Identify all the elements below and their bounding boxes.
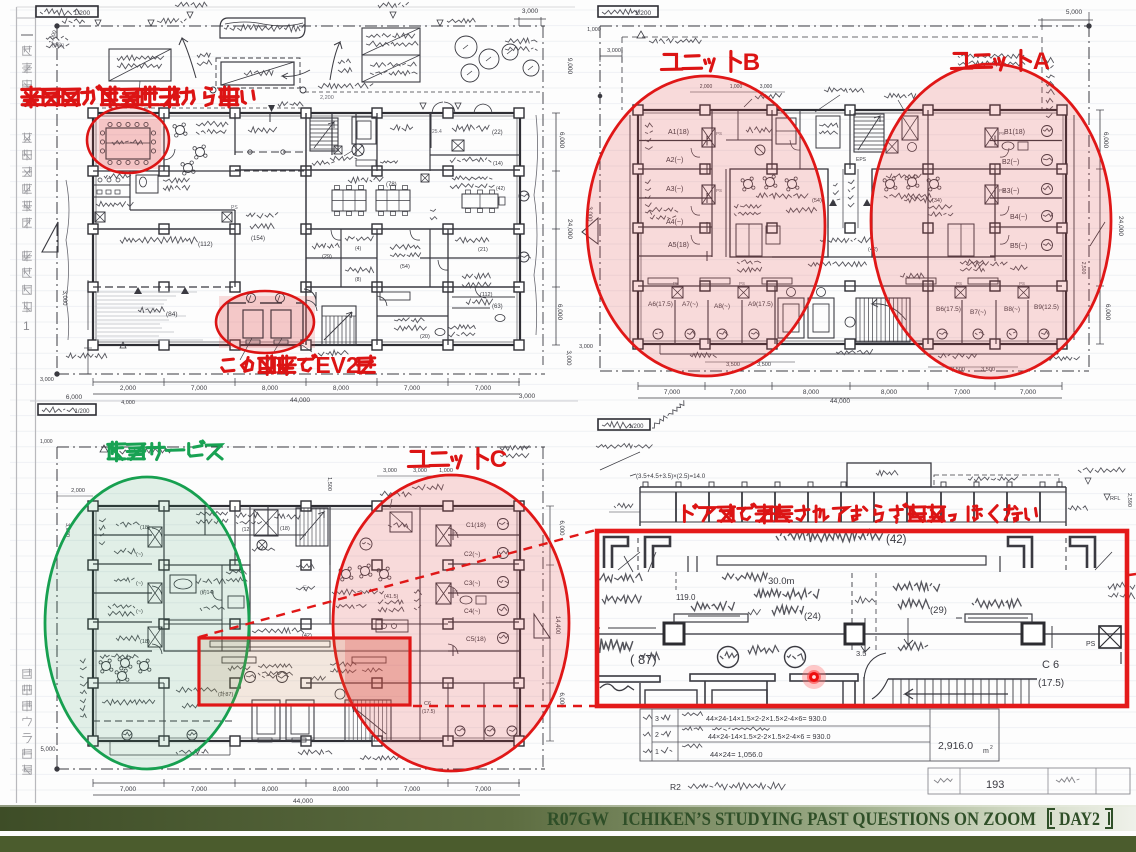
svg-text:44×24-14×1.5×2-2×1.5×2-4×6= 93: 44×24-14×1.5×2-2×1.5×2-4×6= 930.0 bbox=[706, 714, 827, 723]
svg-text:(3.5+4.5+3.5)×(2.5)=14.0: (3.5+4.5+3.5)×(2.5)=14.0 bbox=[636, 473, 706, 480]
svg-text:8,000: 8,000 bbox=[333, 786, 350, 793]
svg-text:8,000: 8,000 bbox=[262, 786, 279, 793]
svg-text:1,000: 1,000 bbox=[40, 439, 53, 445]
svg-text:44×24= 1,056.0: 44×24= 1,056.0 bbox=[710, 750, 763, 759]
svg-text:(78): (78) bbox=[386, 182, 397, 188]
svg-text:1/200: 1/200 bbox=[635, 10, 652, 17]
svg-text:(29): (29) bbox=[930, 605, 947, 616]
svg-text:44×24-14×1.5×2-2×1.5×2-4×6 = 9: 44×24-14×1.5×2-2×1.5×2-4×6 = 930.0 bbox=[708, 732, 831, 741]
svg-text:(14): (14) bbox=[493, 161, 503, 167]
svg-text:3,000: 3,000 bbox=[519, 393, 536, 400]
svg-text:1,500: 1,500 bbox=[326, 477, 332, 491]
svg-text:R2: R2 bbox=[670, 782, 681, 792]
svg-text:3,500: 3,500 bbox=[757, 362, 771, 368]
svg-text:44,000: 44,000 bbox=[293, 798, 313, 805]
svg-text:1/200: 1/200 bbox=[628, 424, 644, 430]
svg-text:(84): (84) bbox=[166, 311, 178, 318]
svg-text:3,000: 3,000 bbox=[760, 84, 773, 90]
svg-text:PS: PS bbox=[231, 205, 238, 211]
svg-text:2: 2 bbox=[655, 732, 659, 739]
svg-text:(21): (21) bbox=[478, 247, 488, 253]
svg-text:3.5: 3.5 bbox=[856, 649, 866, 658]
svg-text:1: 1 bbox=[655, 749, 659, 756]
svg-text:ICHIKEN’S STUDYING PAST QUESTI: ICHIKEN’S STUDYING PAST QUESTIONS ON ZOO… bbox=[622, 809, 1036, 830]
svg-text:30.0m: 30.0m bbox=[768, 576, 794, 587]
svg-text:7,000: 7,000 bbox=[120, 786, 137, 793]
svg-text:3,000: 3,000 bbox=[61, 290, 67, 306]
svg-text:5,000: 5,000 bbox=[40, 747, 56, 753]
svg-text:24,000: 24,000 bbox=[1117, 216, 1124, 236]
svg-text:(42): (42) bbox=[496, 186, 505, 192]
svg-text:25.4: 25.4 bbox=[432, 129, 442, 135]
svg-text:3,000: 3,000 bbox=[565, 350, 571, 366]
svg-text:6,000: 6,000 bbox=[558, 132, 565, 149]
svg-text:(17.5): (17.5) bbox=[1038, 678, 1064, 689]
svg-text:24,000: 24,000 bbox=[566, 219, 573, 239]
svg-text:2: 2 bbox=[990, 745, 993, 751]
svg-text:8,000: 8,000 bbox=[803, 389, 820, 396]
svg-text:C 6: C 6 bbox=[1042, 659, 1059, 671]
svg-text:1,000: 1,000 bbox=[587, 27, 601, 33]
svg-text:(54): (54) bbox=[400, 264, 410, 270]
svg-text:3,000: 3,000 bbox=[413, 468, 427, 474]
svg-text:8,000: 8,000 bbox=[881, 389, 898, 396]
svg-text:1: 1 bbox=[23, 319, 30, 333]
svg-text:(154): (154) bbox=[251, 236, 265, 242]
svg-text:3: 3 bbox=[655, 716, 659, 723]
svg-text:(18): (18) bbox=[280, 526, 290, 532]
svg-text:(42): (42) bbox=[886, 534, 907, 546]
svg-text:7,000: 7,000 bbox=[1020, 389, 1037, 396]
svg-text:3,000: 3,000 bbox=[579, 344, 593, 350]
svg-text:4,000: 4,000 bbox=[121, 400, 135, 406]
svg-text:(22): (22) bbox=[492, 130, 503, 136]
svg-text:2,200: 2,200 bbox=[320, 95, 334, 101]
svg-text:6,000: 6,000 bbox=[1104, 304, 1111, 321]
svg-text:193: 193 bbox=[986, 779, 1004, 791]
svg-text:6,000: 6,000 bbox=[556, 304, 563, 321]
svg-text:(63): (63) bbox=[492, 304, 503, 310]
svg-text:3,000: 3,000 bbox=[607, 48, 621, 54]
svg-text:7,000: 7,000 bbox=[404, 786, 421, 793]
svg-text:RFL: RFL bbox=[1110, 496, 1120, 502]
svg-text:C: C bbox=[490, 446, 507, 473]
svg-text:2,590: 2,590 bbox=[1126, 493, 1132, 507]
svg-text:DAY2: DAY2 bbox=[1059, 809, 1100, 830]
svg-text:3,000: 3,000 bbox=[40, 377, 54, 383]
svg-text:(112): (112) bbox=[198, 241, 213, 248]
svg-text:5,000: 5,000 bbox=[1066, 9, 1083, 16]
svg-text:7,000: 7,000 bbox=[954, 389, 971, 396]
svg-text:A: A bbox=[1033, 48, 1050, 75]
svg-text:R07GW: R07GW bbox=[547, 809, 609, 830]
svg-text:7,000: 7,000 bbox=[475, 385, 492, 392]
svg-text:B: B bbox=[743, 49, 760, 76]
svg-text:1/200: 1/200 bbox=[74, 10, 91, 17]
svg-text:(8): (8) bbox=[355, 277, 361, 283]
svg-text:( 87): ( 87) bbox=[630, 652, 657, 667]
svg-text:6,000: 6,000 bbox=[66, 394, 83, 401]
svg-text:PS: PS bbox=[1086, 641, 1096, 648]
svg-text:EPS: EPS bbox=[856, 157, 867, 163]
svg-text:7,000: 7,000 bbox=[664, 389, 681, 396]
svg-text:44,000: 44,000 bbox=[830, 398, 850, 405]
svg-text:44,000: 44,000 bbox=[290, 397, 310, 404]
svg-text:(4): (4) bbox=[355, 246, 361, 252]
svg-text:1,000: 1,000 bbox=[439, 468, 453, 474]
svg-text:7,000: 7,000 bbox=[730, 389, 747, 396]
svg-text:8,000: 8,000 bbox=[333, 385, 350, 392]
svg-text:(29): (29) bbox=[322, 254, 332, 260]
svg-text:2,000: 2,000 bbox=[71, 488, 85, 494]
svg-text:119.0: 119.0 bbox=[676, 593, 696, 602]
svg-text:7,000: 7,000 bbox=[191, 786, 208, 793]
svg-text:2,000: 2,000 bbox=[120, 385, 137, 392]
svg-text:8,000: 8,000 bbox=[262, 385, 279, 392]
svg-text:3,000: 3,000 bbox=[383, 468, 397, 474]
svg-text:7,000: 7,000 bbox=[404, 385, 421, 392]
svg-text:6,000: 6,000 bbox=[1102, 132, 1109, 149]
svg-text:1/200: 1/200 bbox=[74, 409, 90, 415]
svg-text:7,000: 7,000 bbox=[191, 385, 208, 392]
svg-text:7,000: 7,000 bbox=[475, 786, 492, 793]
svg-text:EV2: EV2 bbox=[315, 352, 358, 378]
svg-text:(20): (20) bbox=[420, 334, 430, 340]
svg-text:9,000: 9,000 bbox=[566, 58, 573, 75]
svg-text:m: m bbox=[983, 748, 989, 755]
svg-text:(24): (24) bbox=[804, 611, 821, 622]
svg-text:3,000: 3,000 bbox=[522, 8, 539, 15]
svg-text:6,000: 6,000 bbox=[558, 520, 564, 536]
svg-text:2,916.0: 2,916.0 bbox=[938, 740, 973, 752]
